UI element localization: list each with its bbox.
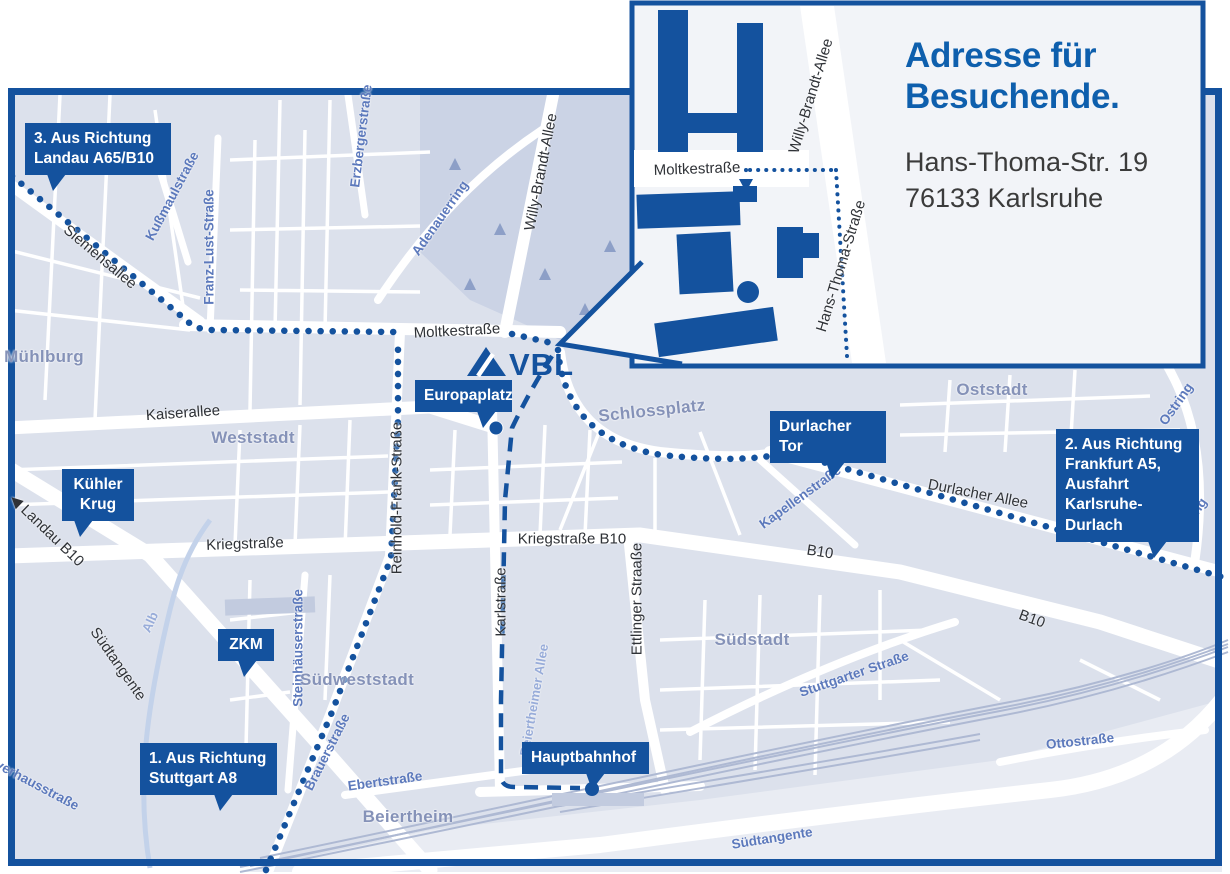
- europaplatz-stop-marker: [490, 422, 503, 435]
- address-card: Adresse für Besuchende. Hans-Thoma-Str. …: [905, 36, 1205, 216]
- city-map: VBL SiemensalleeMoltkestraßeKaiseralleeK…: [0, 0, 1230, 874]
- address-card-address: Hans-Thoma-Str. 19 76133 Karlsruhe: [905, 145, 1205, 216]
- vbl-logo-text: VBL: [509, 347, 574, 382]
- address-card-title: Adresse für Besuchende.: [905, 36, 1205, 118]
- hauptbahnhof-stop-marker: [585, 782, 599, 796]
